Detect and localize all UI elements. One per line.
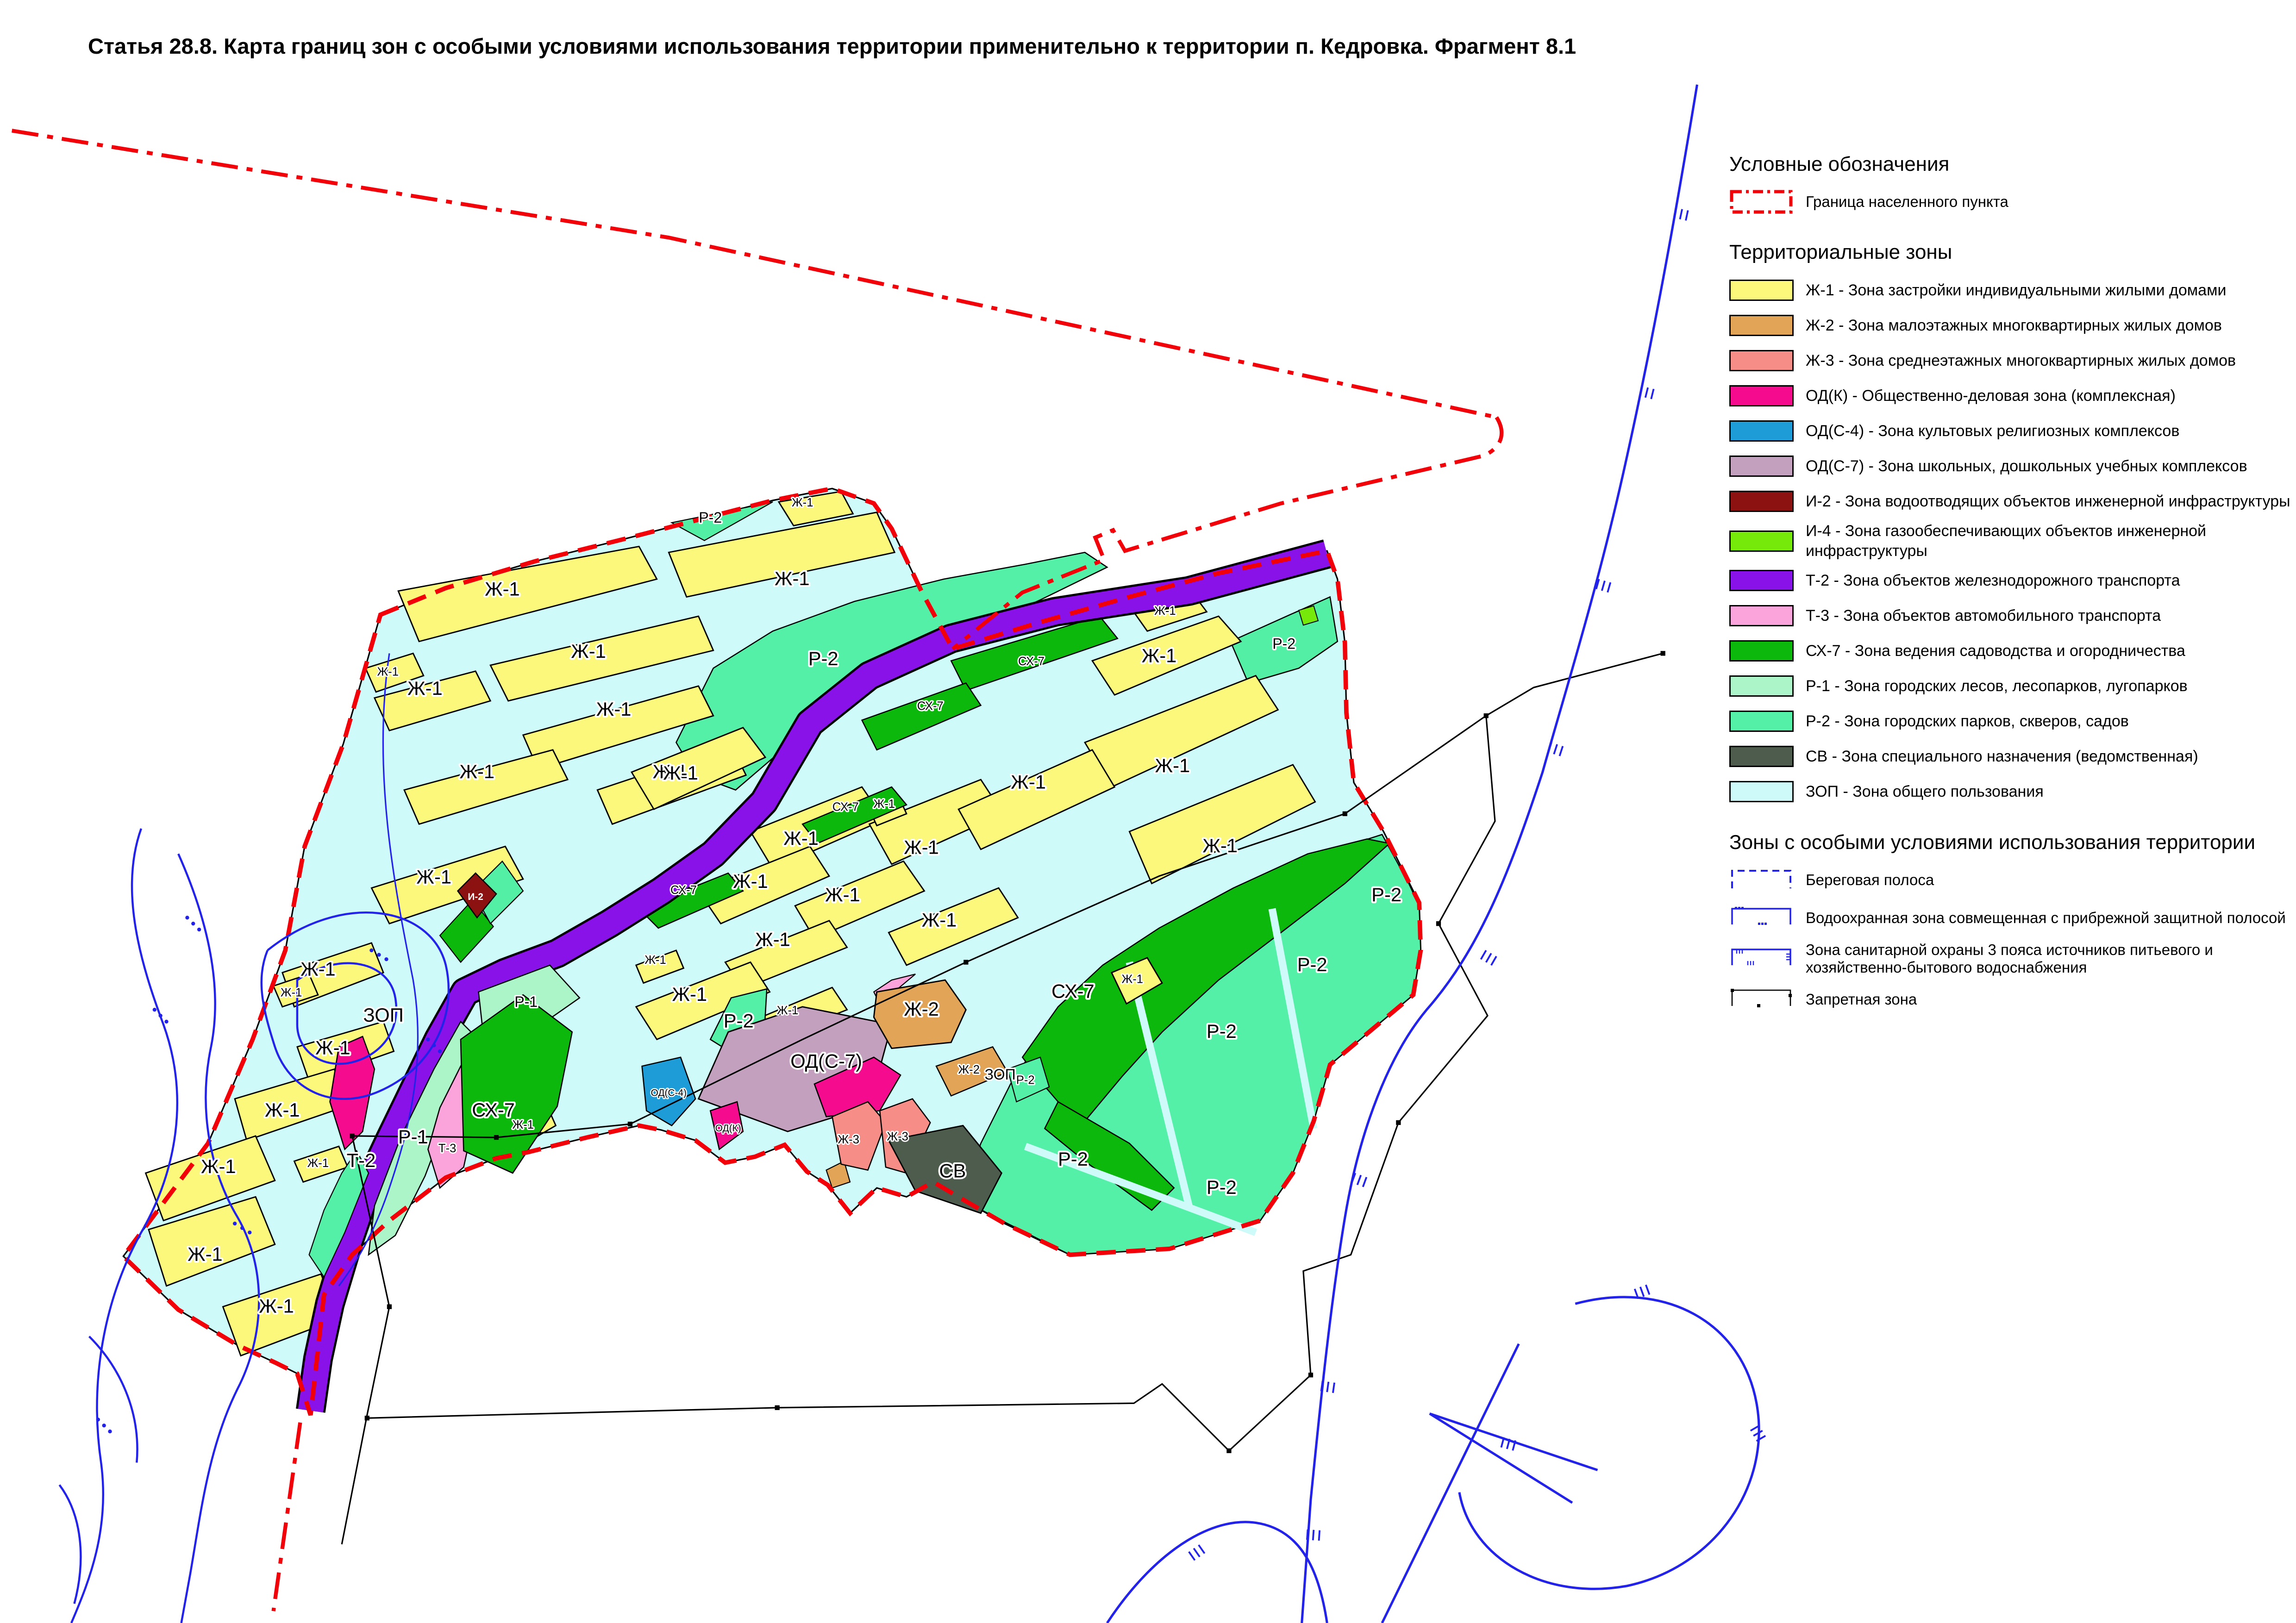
map-zone-label: Р-2 [1371, 884, 1401, 905]
legend-symbols-title: Условные обозначения [1729, 153, 2292, 176]
map-zone-label: Ж-1 [407, 677, 443, 699]
legend-special-row: Водоохранная зона совмещенная с прибрежн… [1729, 903, 2292, 933]
legend-zone-row: И-4 - Зона газообеспечивающих объектов и… [1729, 521, 2292, 561]
zone-color-swatch [1729, 280, 1794, 301]
water-zone-symbol [1729, 903, 1794, 933]
map-zone-label: Ж-1 [775, 568, 810, 589]
map-zone-label: Ж-1 [188, 1243, 223, 1265]
map-zone-label: Ж-1 [1122, 973, 1144, 986]
legend-special-row: Береговая полоса [1729, 865, 2292, 895]
zone-label: Р-1 - Зона городских лесов, лесопарков, … [1806, 676, 2188, 696]
map-zone-label: СХ-7 [917, 699, 944, 712]
map-zone-label: Ж-1 [663, 762, 698, 784]
zone-color-swatch [1729, 711, 1794, 732]
map-zone-label: Ж-3 [887, 1130, 908, 1143]
map-zone-label: Ж-1 [777, 1004, 799, 1017]
map-zone-label: Ж-1 [377, 666, 399, 679]
coastal-zone-symbol [1729, 865, 1794, 895]
map-zone-label: Ж-1 [300, 958, 336, 980]
map-zone-label: Ж-1 [315, 1036, 350, 1058]
forbidden-zone-symbol [1729, 985, 1794, 1014]
zone-label: Ж-1 - Зона застройки индивидуальными жил… [1806, 281, 2226, 300]
map-zone-label: ОД(К) [715, 1123, 741, 1134]
map-zone-label: Ж-3 [838, 1133, 859, 1146]
zoning-map-page: Статья 28.8. Карта границ зон с особыми … [0, 0, 2296, 1623]
map-zone-label: ОД(С-4) [651, 1087, 687, 1098]
legend-special-row: Зона санитарной охраны 3 пояса источнико… [1729, 941, 2292, 976]
zone-color-swatch [1729, 531, 1794, 552]
zone-color-swatch [1729, 385, 1794, 406]
map-zone-label: Ж-1 [485, 578, 520, 599]
zone-color-swatch [1729, 746, 1794, 767]
zone-color-swatch [1729, 350, 1794, 371]
legend-zone-row: Ж-2 - Зона малоэтажных многоквартирных ж… [1729, 310, 2292, 341]
map-zone-label: Р-2 [1207, 1176, 1237, 1198]
legend-boundary-row: Граница населенного пункта [1729, 187, 2292, 217]
zone-label: Ж-3 - Зона среднеэтажных многоквартирных… [1806, 351, 2236, 371]
legend-zones-title: Территориальные зоны [1729, 241, 2292, 264]
map-zone-label: Ж-1 [733, 870, 768, 892]
map-zone-label: Т-2 [347, 1149, 376, 1171]
map-zone-label: Ж-1 [1011, 771, 1046, 793]
special-zone-label: Запретная зона [1806, 991, 1917, 1008]
map-zone-label: Р-2 [1207, 1020, 1237, 1042]
map-zone-label: Ж-1 [1155, 755, 1190, 776]
zone-color-swatch [1729, 605, 1794, 626]
map-zone-label: Ж-1 [307, 1157, 329, 1170]
map-zone-label: Ж-1 [513, 1118, 534, 1131]
zone-label: Ж-2 - Зона малоэтажных многоквартирных ж… [1806, 316, 2222, 336]
zone-color-swatch [1729, 640, 1794, 662]
zone-color-swatch [1729, 570, 1794, 591]
map-zone-label: Ж-1 [596, 698, 632, 720]
map-zone-label: Р-2 [724, 1010, 754, 1032]
zone-color-swatch [1729, 781, 1794, 802]
map-zone-label: Ж-1 [259, 1295, 294, 1317]
legend: Условные обозначения Граница населенного… [1729, 153, 2292, 1023]
map-zone-label: Ж-1 [672, 983, 707, 1005]
map-zone-label: Р-2 [1058, 1148, 1088, 1170]
map-zone-label: Р-2 [1016, 1074, 1035, 1087]
map-zone-label: Р-2 [1297, 954, 1327, 975]
map-zone-label: Ж-1 [201, 1155, 236, 1177]
legend-zone-row: Ж-3 - Зона среднеэтажных многоквартирных… [1729, 345, 2292, 376]
map-zone-label: Р-2 [1272, 636, 1295, 652]
map-zone-label: Р-1 [514, 993, 538, 1010]
legend-special-title: Зоны с особыми условиями использования т… [1729, 831, 2292, 854]
map-zone-label: ЗОП [985, 1066, 1016, 1083]
zone-color-swatch [1729, 420, 1794, 442]
legend-zone-row: ЗОП - Зона общего пользования [1729, 776, 2292, 807]
zone-color-swatch [1729, 491, 1794, 512]
map-zone-label: Ж-2 [958, 1063, 980, 1076]
map-zone-label: Ж-1 [1154, 605, 1176, 618]
map-zone-label: Р-2 [699, 509, 722, 526]
zone-color-swatch [1729, 675, 1794, 697]
zone-label: СХ-7 - Зона ведения садоводства и огород… [1806, 641, 2185, 661]
special-zone-label: Зона санитарной охраны 3 пояса источнико… [1806, 941, 2292, 976]
map-zone-label: Ж-1 [265, 1099, 300, 1121]
zone-label: ОД(С-7) - Зона школьных, дошкольных учеб… [1806, 456, 2247, 476]
legend-zone-row: СХ-7 - Зона ведения садоводства и огород… [1729, 636, 2292, 666]
legend-zone-row: ОД(К) - Общественно-деловая зона (компле… [1729, 381, 2292, 411]
legend-zone-row: СВ - Зона специального назначения (ведом… [1729, 741, 2292, 772]
map-zone-label: Р-2 [808, 648, 838, 669]
map-zone-label: Ж-2 [904, 998, 939, 1020]
sanitary-zone-symbol [1729, 944, 1794, 974]
map-zone-label: Р-1 [398, 1126, 428, 1148]
map-zone-label: Ж-1 [874, 798, 895, 811]
legend-zone-row: Т-3 - Зона объектов автомобильного транс… [1729, 600, 2292, 631]
map-zone-label: СХ-7 [670, 884, 697, 897]
map-zone-label: Ж-1 [644, 954, 666, 967]
town-border-symbol [1729, 187, 1794, 217]
map-zone-label: Ж-1 [1202, 835, 1238, 856]
map-zone-label: Ж-1 [783, 827, 819, 849]
map-zone-label: Ж-1 [416, 866, 451, 888]
map-zone-label: Ж-1 [1142, 645, 1177, 667]
special-zone-label: Береговая полоса [1806, 871, 1934, 889]
map-zone-label: Т-3 [438, 1142, 456, 1155]
map-zone-label: Ж-1 [755, 928, 790, 950]
zone-label: СВ - Зона специального назначения (ведом… [1806, 747, 2198, 767]
legend-special-row: Запретная зона [1729, 985, 2292, 1014]
map-zone-label: И-2 [468, 892, 483, 902]
zone-label: И-2 - Зона водоотводящих объектов инжене… [1806, 492, 2290, 512]
zone-label: Р-2 - Зона городских парков, скверов, са… [1806, 712, 2129, 731]
legend-zone-row: ОД(С-4) - Зона культовых религиозных ком… [1729, 416, 2292, 446]
map-zone-label: Ж-1 [571, 640, 606, 662]
zone-label: Т-3 - Зона объектов автомобильного транс… [1806, 606, 2161, 626]
map-zone-label: Ж-1 [281, 986, 302, 999]
map-zone-label: Ж-1 [904, 836, 939, 858]
legend-zone-row: Р-1 - Зона городских лесов, лесопарков, … [1729, 671, 2292, 701]
legend-boundary-label: Граница населенного пункта [1806, 193, 2008, 211]
map-zone-label: СХ-7 [1051, 980, 1095, 1002]
map-zone-label: СХ-7 [472, 1099, 515, 1121]
map-zone-label: СХ-7 [832, 800, 859, 813]
map-zone-label: Ж-1 [792, 496, 813, 509]
zone-color-swatch [1729, 456, 1794, 477]
map-zone-label: ЗОП [363, 1004, 404, 1026]
legend-zone-row: И-2 - Зона водоотводящих объектов инжене… [1729, 486, 2292, 517]
zone-label: ОД(С-4) - Зона культовых религиозных ком… [1806, 421, 2179, 441]
legend-zone-row: Р-2 - Зона городских парков, скверов, са… [1729, 706, 2292, 737]
map-zone-label: Ж-1 [460, 761, 495, 782]
zone-color-swatch [1729, 315, 1794, 336]
zone-label: И-4 - Зона газообеспечивающих объектов и… [1806, 521, 2292, 561]
zone-label: Т-2 - Зона объектов железнодорожного тра… [1806, 571, 2180, 591]
zone-label: ОД(К) - Общественно-деловая зона (компле… [1806, 386, 2176, 406]
map-zone-label: СВ [939, 1160, 966, 1182]
map-zone-label: СХ-7 [1018, 655, 1045, 668]
legend-zone-row: Т-2 - Зона объектов железнодорожного тра… [1729, 565, 2292, 596]
map-zone-label: Ж-1 [922, 909, 957, 931]
special-zone-label: Водоохранная зона совмещенная с прибрежн… [1806, 909, 2286, 927]
legend-zone-row: Ж-1 - Зона застройки индивидуальными жил… [1729, 275, 2292, 306]
zone-label: ЗОП - Зона общего пользования [1806, 782, 2044, 802]
map-zone-label: Ж-1 [825, 884, 860, 905]
legend-zone-row: ОД(С-7) - Зона школьных, дошкольных учеб… [1729, 451, 2292, 481]
map-zone-label: ОД(С-7) [790, 1050, 862, 1072]
